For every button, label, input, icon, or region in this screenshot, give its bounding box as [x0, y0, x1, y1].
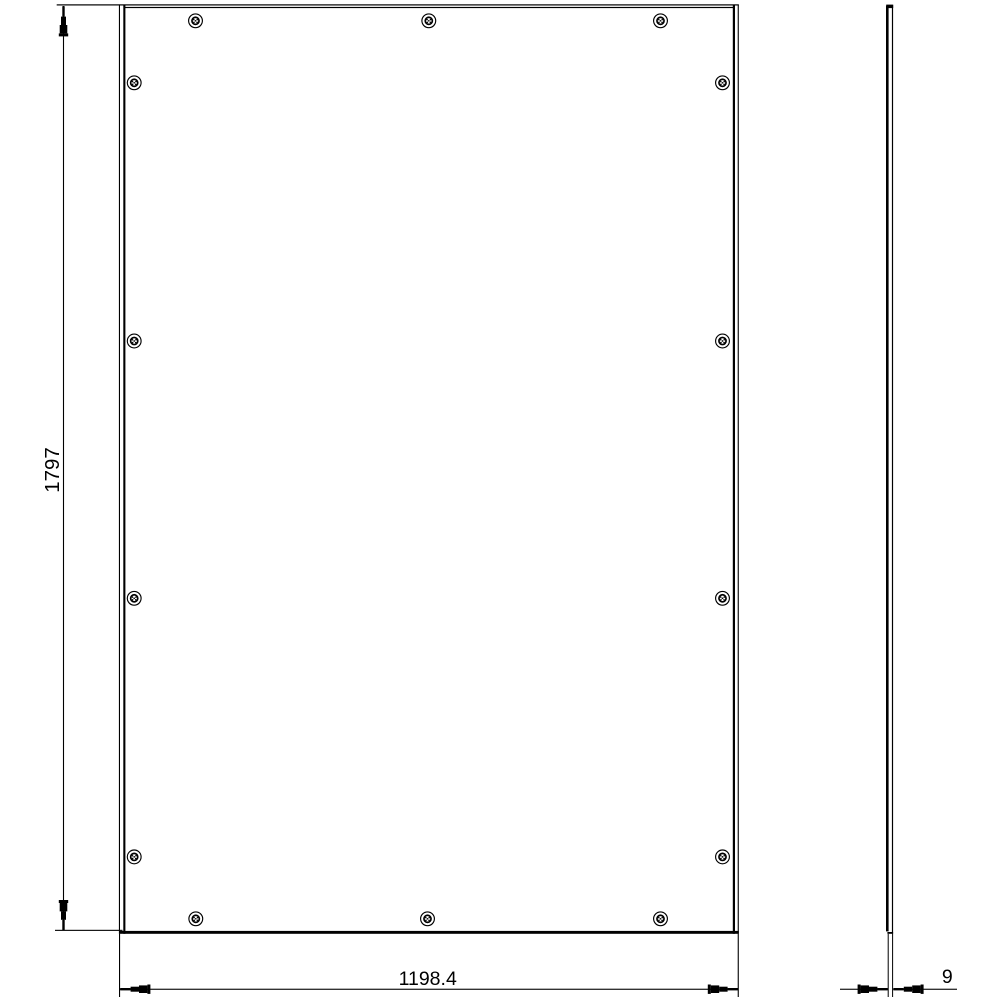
svg-text:1797: 1797	[41, 447, 64, 493]
svg-text:9: 9	[942, 966, 953, 988]
svg-text:1198.4: 1198.4	[399, 968, 457, 990]
